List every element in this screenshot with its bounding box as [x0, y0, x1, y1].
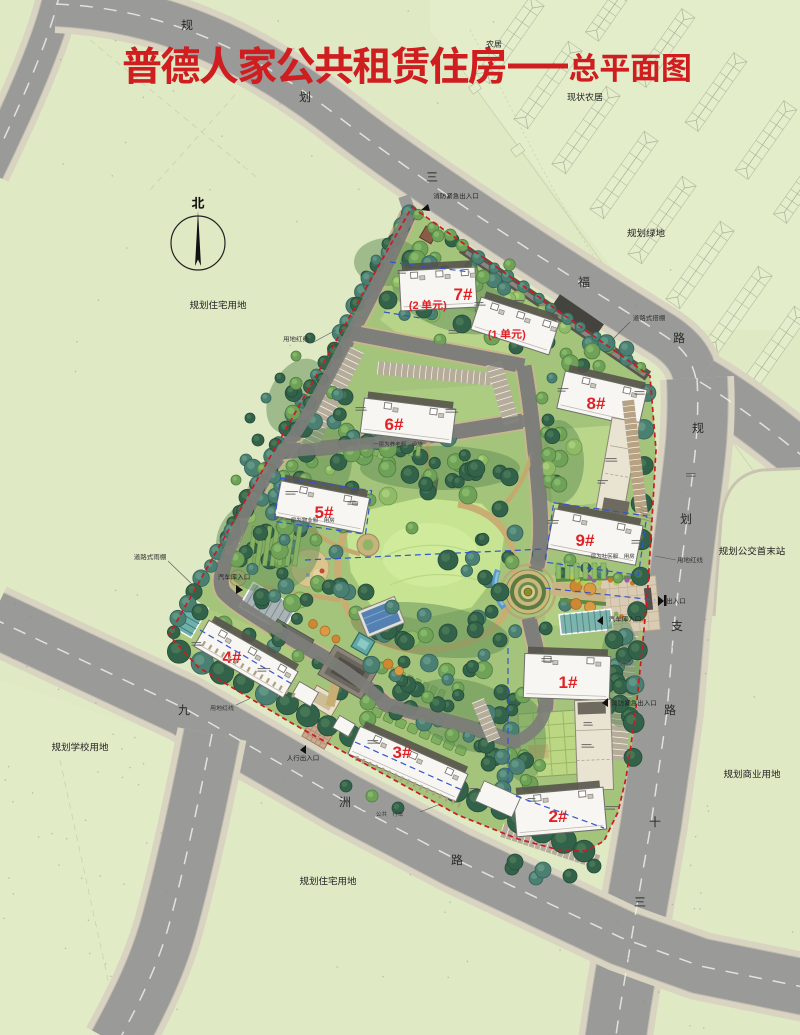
svg-text:): )	[443, 300, 447, 312]
svg-text:(1: (1	[488, 329, 498, 341]
svg-text:): )	[522, 329, 526, 341]
svg-text:8#: 8#	[587, 394, 606, 413]
svg-text:1#: 1#	[559, 673, 578, 692]
svg-text:3#: 3#	[393, 743, 412, 762]
svg-text:7#: 7#	[454, 285, 473, 304]
svg-text:2#: 2#	[549, 807, 568, 826]
svg-text:6#: 6#	[385, 415, 404, 434]
svg-text:5#: 5#	[315, 503, 334, 522]
svg-text:9#: 9#	[576, 531, 595, 550]
svg-text:(2: (2	[409, 300, 419, 312]
svg-text:4#: 4#	[223, 648, 242, 667]
